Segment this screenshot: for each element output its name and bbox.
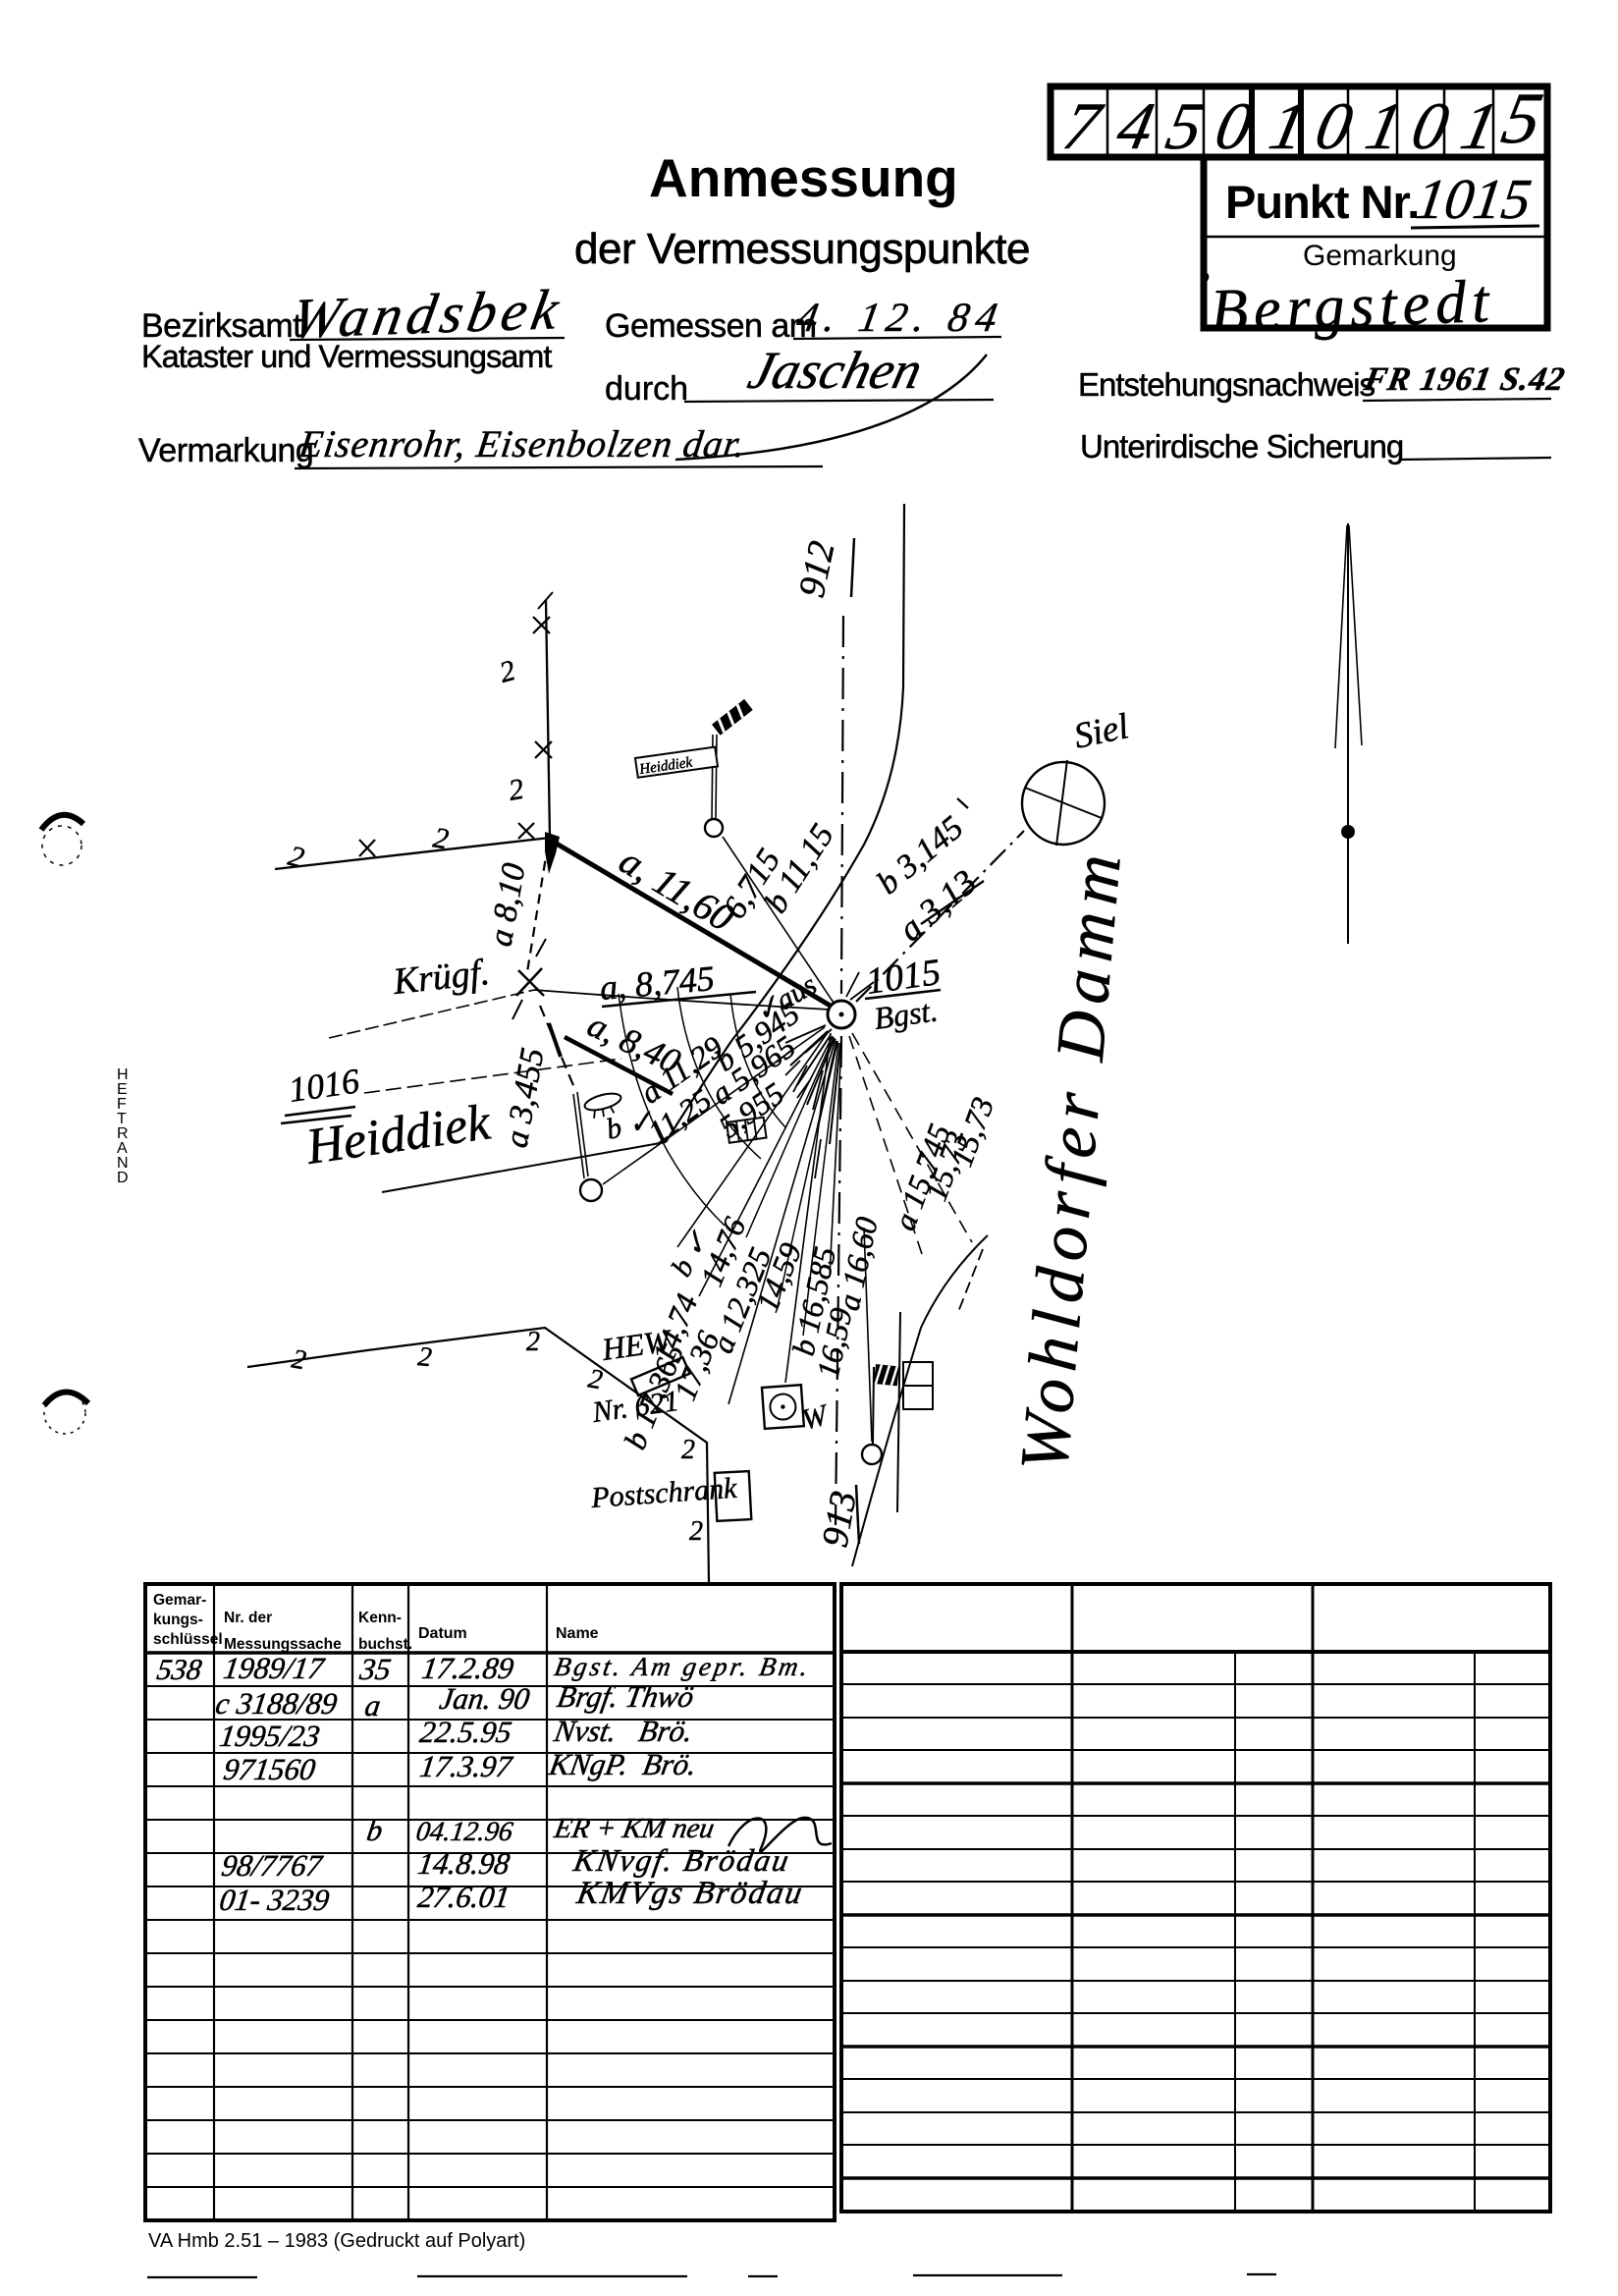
svg-text:2: 2 — [431, 821, 452, 855]
svg-text:Bgst.: Bgst. — [872, 992, 940, 1036]
svg-text:2: 2 — [681, 1435, 695, 1465]
svg-text:a 3,455: a 3,455 — [498, 1046, 551, 1151]
svg-text:2: 2 — [526, 1327, 540, 1357]
svg-text:Wohldorfer Damm: Wohldorfer Damm — [1006, 851, 1136, 1474]
svg-text:Krügf.: Krügf. — [391, 952, 492, 1003]
svg-text:2: 2 — [290, 1343, 308, 1376]
svg-text:2: 2 — [586, 1363, 605, 1395]
svg-text:2: 2 — [506, 773, 526, 807]
svg-text:b ✓: b ✓ — [604, 1105, 656, 1146]
svg-text:a 8,10: a 8,10 — [482, 860, 532, 949]
svg-text:912: 912 — [791, 537, 843, 600]
svg-text:Nr. 621: Nr. 621 — [589, 1385, 680, 1429]
svg-text:913: 913 — [815, 1488, 865, 1550]
svg-text:W: W — [798, 1398, 834, 1437]
svg-text:2: 2 — [689, 1516, 703, 1547]
svg-text:Siel: Siel — [1070, 706, 1132, 757]
svg-text:a, 8,745: a, 8,745 — [598, 958, 716, 1008]
svg-text:2: 2 — [416, 1341, 433, 1373]
svg-text:2: 2 — [496, 654, 518, 689]
svg-text:a 16,60: a 16,60 — [831, 1214, 885, 1313]
svg-text:1016: 1016 — [287, 1061, 362, 1110]
svg-text:2: 2 — [285, 840, 307, 875]
svg-text:Heiddiek: Heiddiek — [302, 1094, 495, 1175]
